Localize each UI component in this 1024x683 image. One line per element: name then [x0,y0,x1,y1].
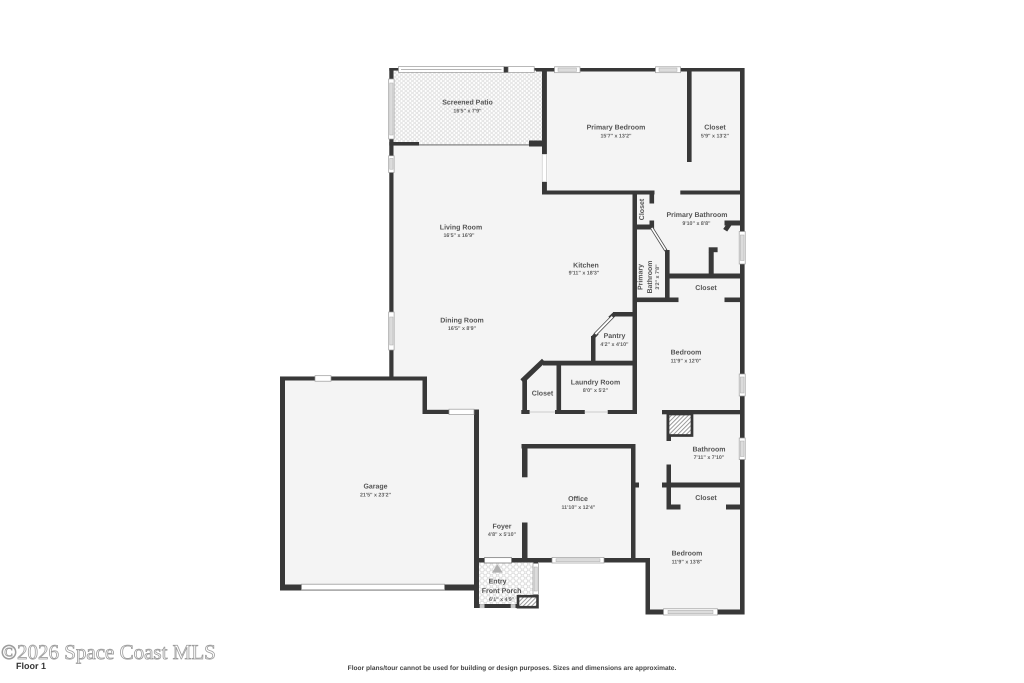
svg-text:Bedroom: Bedroom [671,349,702,357]
svg-text:16'5" x 8'9": 16'5" x 8'9" [448,326,477,332]
svg-text:16'5" x 16'9": 16'5" x 16'9" [443,233,475,239]
svg-text:Closet: Closet [704,124,726,132]
svg-text:Kitchen: Kitchen [573,262,599,270]
svg-text:Laundry Room: Laundry Room [571,379,620,387]
svg-text:21'5" x 23'2": 21'5" x 23'2" [360,493,392,499]
svg-text:Bedroom: Bedroom [672,550,703,558]
svg-text:Primary: Primary [637,264,645,290]
svg-text:3'2" x 7'8": 3'2" x 7'8" [655,264,661,290]
svg-text:4'8" x 5'10": 4'8" x 5'10" [488,532,517,538]
svg-text:Closet: Closet [695,284,717,292]
svg-text:11'9" x 12'0": 11'9" x 12'0" [671,359,702,365]
svg-text:Closet: Closet [532,390,554,398]
svg-text:9'11" x 18'3": 9'11" x 18'3" [569,271,600,277]
svg-text:16'5" x 7'9": 16'5" x 7'9" [453,109,482,115]
svg-text:Closet: Closet [695,494,717,502]
svg-text:Pantry: Pantry [604,333,626,340]
svg-text:Dining Room: Dining Room [440,317,484,325]
svg-text:Closet: Closet [638,198,646,220]
svg-text:Bathroom: Bathroom [646,260,654,293]
svg-text:8'0" x 5'2": 8'0" x 5'2" [583,388,609,394]
svg-text:Living Room: Living Room [440,224,482,232]
svg-text:Office: Office [568,495,588,503]
svg-text:11'9" x 13'8": 11'9" x 13'8" [672,560,703,566]
svg-text:Garage: Garage [363,484,387,491]
svg-text:Screened Patio: Screened Patio [442,99,493,107]
svg-text:Primary Bathroom: Primary Bathroom [666,211,727,219]
svg-text:Entry: Entry [489,579,507,586]
svg-text:Primary Bedroom: Primary Bedroom [587,124,646,132]
svg-text:4'2" x 4'10": 4'2" x 4'10" [600,342,629,348]
svg-text:11'10" x 12'4": 11'10" x 12'4" [562,505,596,511]
svg-text:Foyer: Foyer [492,524,511,531]
svg-text:15'7" x 13'2": 15'7" x 13'2" [600,134,632,140]
svg-text:5'9" x 13'2": 5'9" x 13'2" [701,134,730,140]
svg-text:Front Porch: Front Porch [482,587,522,595]
svg-text:7'11" x 7'10": 7'11" x 7'10" [694,455,725,461]
svg-text:9'10" x 8'8": 9'10" x 8'8" [682,221,711,227]
svg-text:6'1" x 4'9": 6'1" x 4'9" [489,597,515,603]
svg-text:Bathroom: Bathroom [692,446,725,454]
